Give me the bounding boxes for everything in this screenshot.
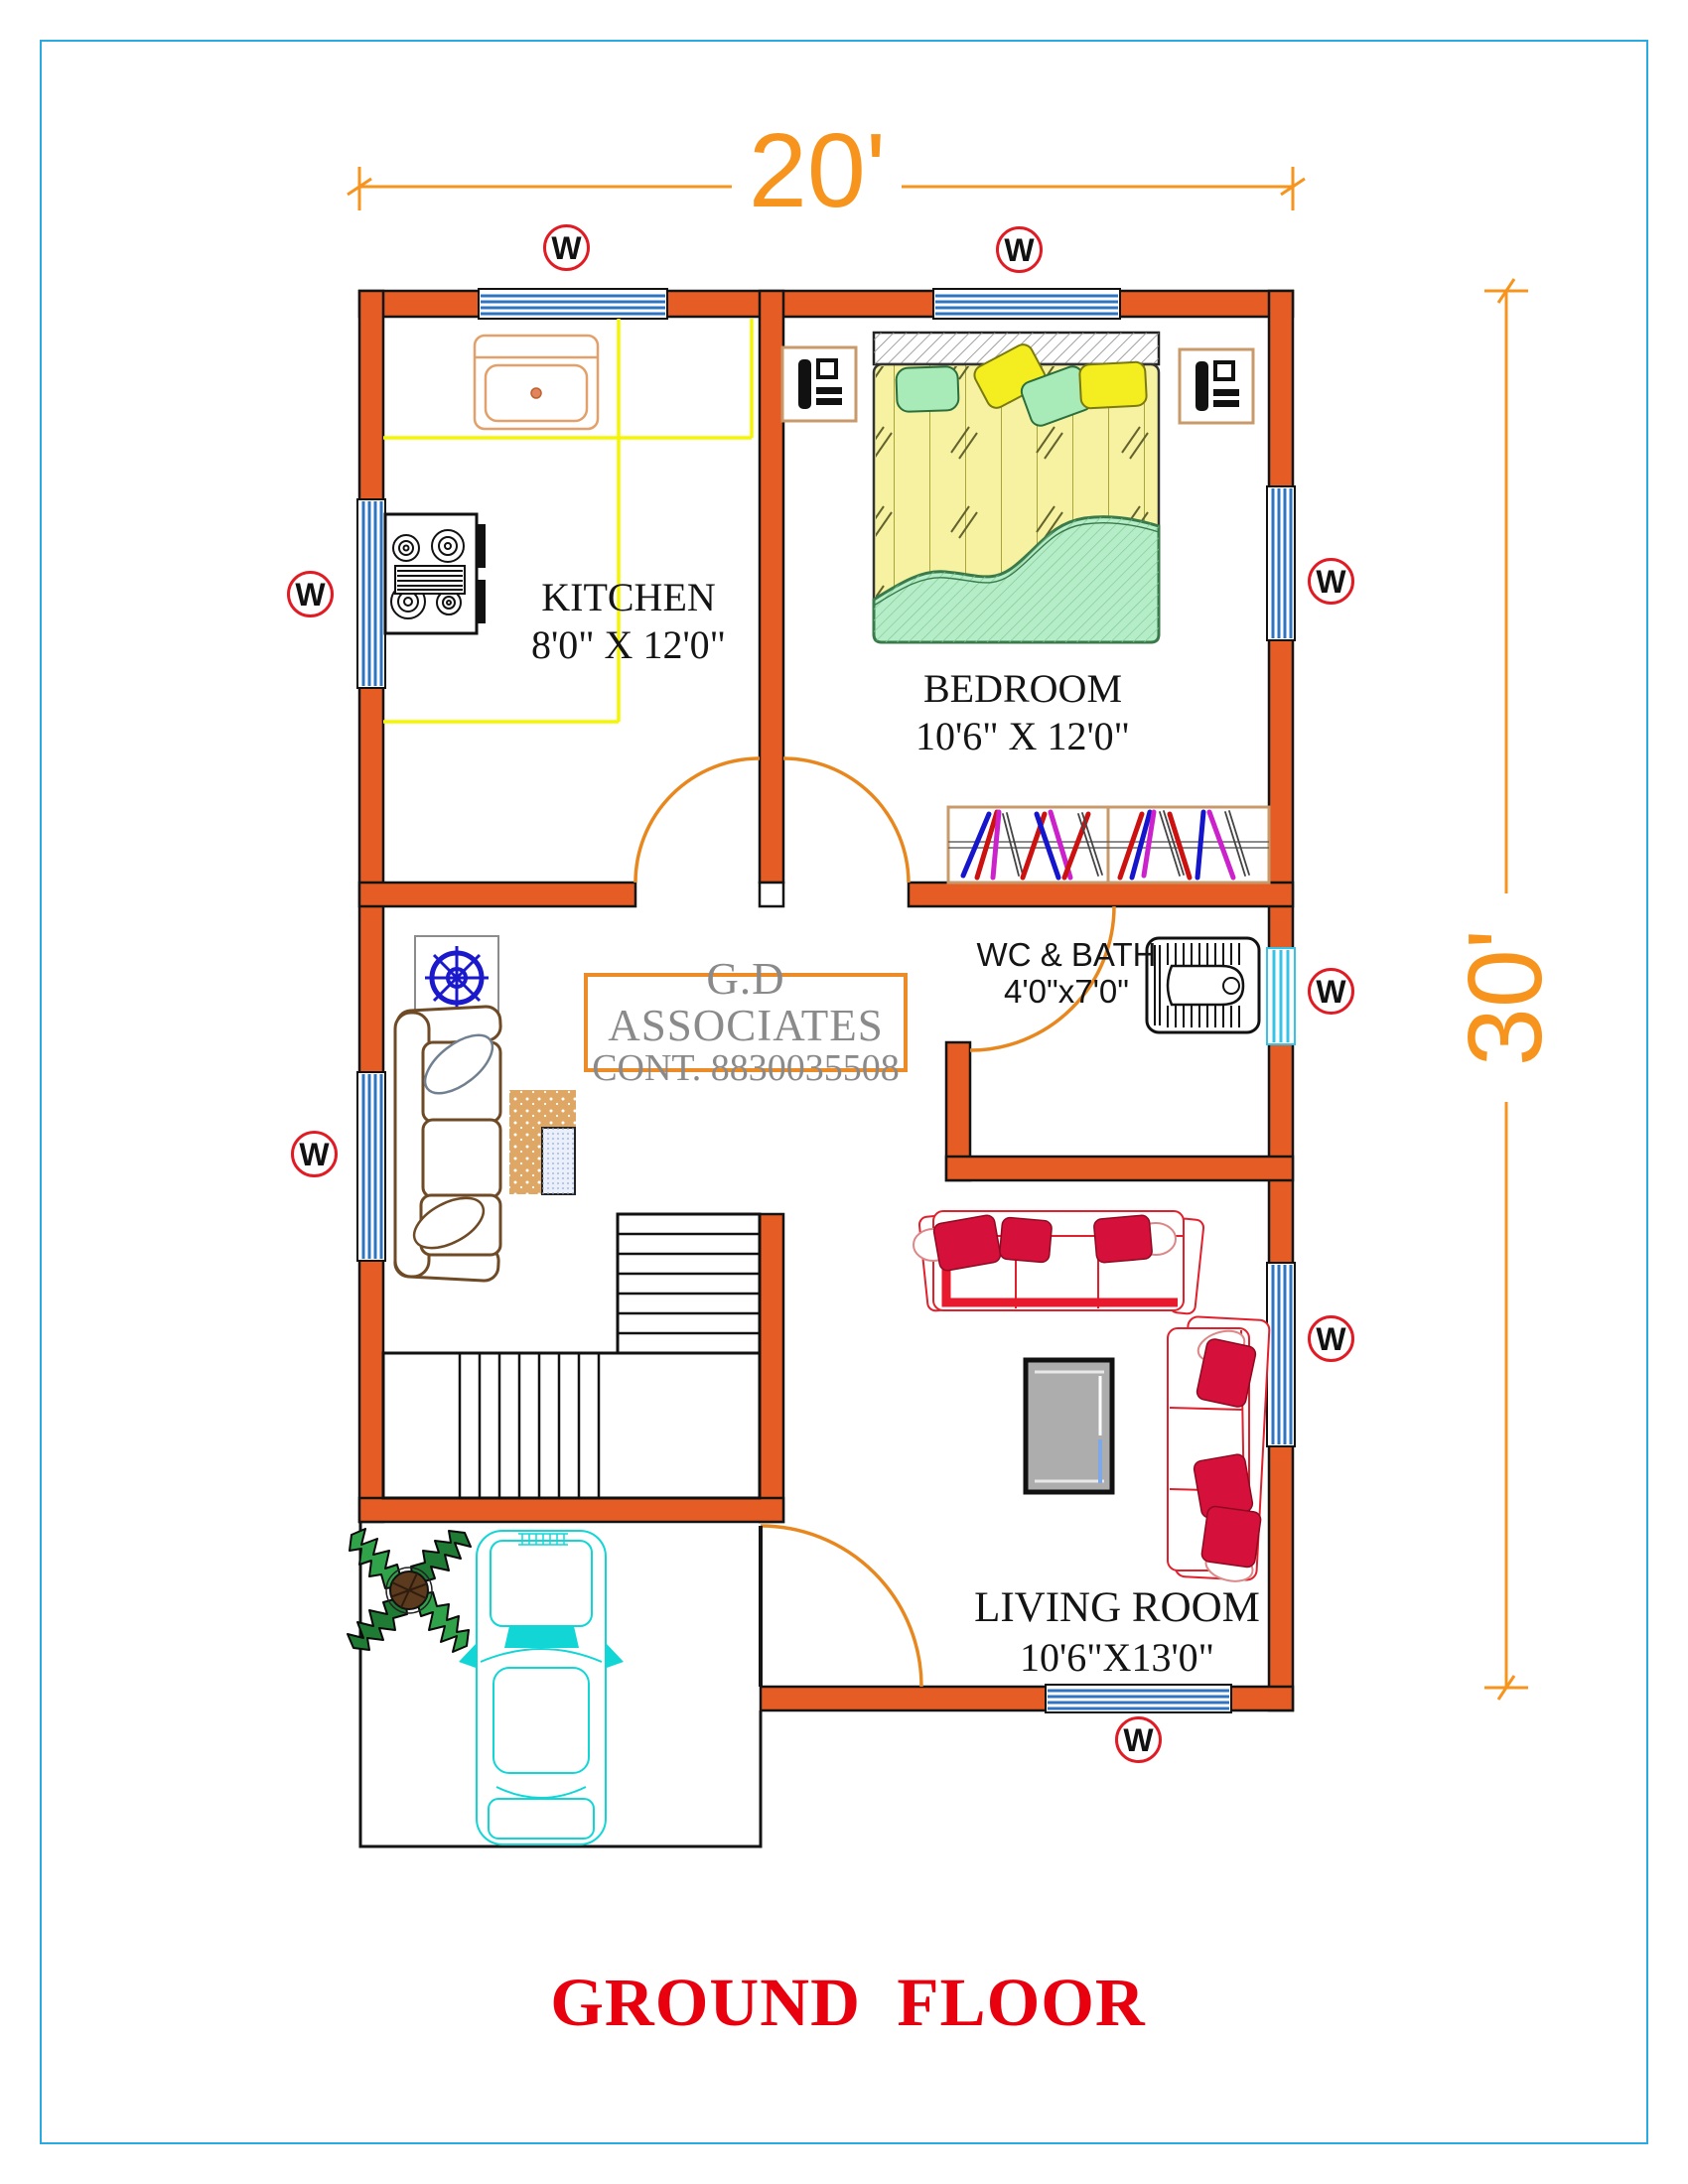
kitchen-name: KITCHEN [480,574,777,621]
dimension-depth-label: 30' [1451,923,1560,1072]
window-kitchen-top [479,289,667,319]
firm-contact: CONT. 8830035508 [588,1049,904,1089]
wc-bath-size: 4'0"x7'0" [951,974,1182,1011]
kitchen-size: 8'0" X 12'0" [480,621,777,669]
stove-icon [385,514,486,633]
tv-table-icon [1026,1360,1112,1492]
window-hall-left [357,1072,385,1261]
bedroom-label: BEDROOM 10'6" X 12'0" [859,665,1187,760]
window-living-right [1267,1263,1295,1446]
wall-middle-right [909,883,1293,906]
living-room-label: LIVING ROOM 10'6"X13'0" [943,1582,1291,1682]
bedroom-size: 10'6" X 12'0" [859,713,1187,760]
door-arc-entrance [761,1526,921,1687]
hall-sofa-icon [394,1006,502,1281]
firm-info-box: G.D ASSOCIATES CONT. 8830035508 [584,973,908,1072]
window-kitchen-left [357,499,385,688]
window-wc-right [1267,948,1295,1044]
window-living-bottom [1046,1685,1231,1712]
wall-hall-bottom [359,1498,783,1522]
window-marker-top-kitchen: W [543,224,590,271]
plant-icon [348,1529,471,1652]
living-room-size: 10'6"X13'0" [943,1634,1291,1682]
car-icon [459,1531,624,1844]
window-marker-right-wc: W [1308,968,1354,1015]
nightstand-right-icon [1180,349,1253,423]
door-jamb-post [760,883,783,906]
bed-icon [874,333,1159,642]
window-bedroom-top [933,289,1120,319]
wardrobe-icon [948,807,1269,883]
nightstand-left-icon [782,347,856,421]
sink-icon [475,336,598,429]
wc-bath-name: WC & BATH [951,937,1182,974]
living-sofa-top-icon [914,1211,1204,1314]
kitchen-label: KITCHEN 8'0" X 12'0" [480,574,777,669]
wc-bath-label: WC & BATH 4'0"x7'0" [951,937,1182,1011]
living-sofa-right-icon [1168,1316,1270,1585]
window-marker-bottom-living: W [1115,1716,1162,1763]
door-arc-kitchen [635,758,760,883]
window-marker-top-bedroom: W [996,226,1043,273]
dimension-width-label: 20' [732,111,903,231]
firm-name: G.D ASSOCIATES [588,956,904,1050]
living-room-name: LIVING ROOM [943,1582,1291,1634]
window-marker-right-bedroom: W [1308,558,1354,605]
floor-plan-drawing [0,0,1688,2184]
window-bedroom-right [1267,486,1295,640]
door-arc-bedroom [783,758,909,883]
rug-icon [509,1090,576,1194]
window-marker-left-kitchen: W [287,571,334,617]
wall-stairs-right [760,1214,783,1522]
wall-wc-bottom [946,1157,1293,1180]
floor-plan-page: 20' 30' KITCHEN 8'0" X 12'0" BEDROOM 10'… [0,0,1688,2184]
wall-middle-left [359,883,635,906]
window-marker-left-hall: W [291,1131,338,1177]
window-marker-right-living: W [1308,1315,1354,1362]
page-title: GROUND FLOOR [500,1964,1196,2042]
bedroom-name: BEDROOM [859,665,1187,713]
